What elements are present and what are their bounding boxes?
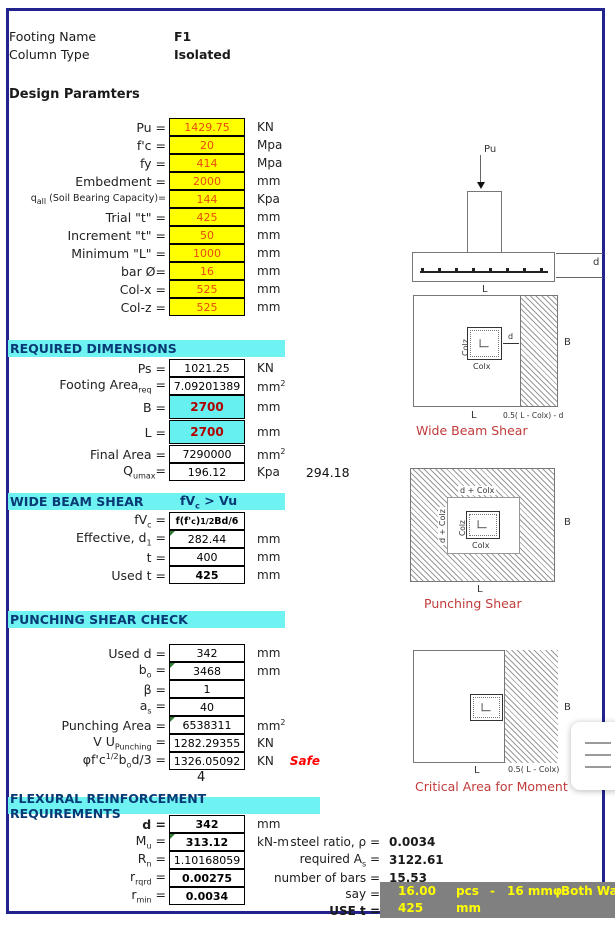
wide-beam-strip-label: 0.5( L - Colx) - d bbox=[503, 411, 563, 420]
col-z-unit: mm bbox=[257, 300, 280, 314]
say-pcs-label: pcs bbox=[456, 884, 479, 898]
phi-capacity-cell[interactable]: 1326.05092 bbox=[169, 752, 245, 770]
qall-unit: Kpa bbox=[257, 192, 280, 206]
footing-area-cell[interactable]: 7.09201389 bbox=[169, 377, 245, 395]
wide-beam-colz-label: Colz bbox=[461, 339, 470, 356]
embedment-row: Embedment = 2000 mm bbox=[8, 172, 280, 190]
col-z-label: Col-z = bbox=[8, 300, 169, 315]
moment-column-square bbox=[470, 694, 503, 721]
mu-cell[interactable]: 313.12 bbox=[169, 833, 245, 851]
r-min-label: rmin = bbox=[8, 887, 169, 905]
say-both-way-label: Both Way bbox=[561, 884, 615, 898]
t-row: t = 400 mm bbox=[8, 548, 280, 566]
footing-name-row: Footing Name F1 bbox=[9, 28, 191, 44]
vu-punching-unit: KN bbox=[257, 736, 274, 750]
column-mark-icon bbox=[478, 520, 487, 528]
wide-beam-shear-strip bbox=[520, 295, 558, 407]
wide-beam-shear-header: WIDE BEAM SHEAR fVc > Vu bbox=[8, 493, 285, 510]
qumax-cell[interactable]: 196.12 bbox=[169, 463, 245, 481]
qall-input-cell[interactable]: 144 bbox=[169, 190, 245, 208]
column-type-row: Column Type Isolated bbox=[9, 46, 231, 62]
used-d-label: Used d = bbox=[8, 646, 169, 661]
elevation-length-label: L bbox=[482, 284, 488, 295]
wide-beam-caption: Wide Beam Shear bbox=[416, 423, 528, 438]
bo-cell[interactable]: 3468 bbox=[169, 662, 245, 680]
fy-row: fy = 414 Mpa bbox=[8, 154, 282, 172]
l-label: L = bbox=[8, 425, 169, 440]
use-t-label: USE t = bbox=[240, 904, 380, 918]
trial-t-label: Trial "t" = bbox=[8, 210, 169, 225]
fy-label: fy = bbox=[8, 156, 169, 171]
wide-beam-d-arrow bbox=[503, 343, 519, 344]
pu-load-label: Pu bbox=[484, 144, 496, 155]
vu-punching-row: V UPunching = 1282.29355 KN bbox=[8, 734, 274, 752]
minimum-l-row: Minimum "L" = 1000 mm bbox=[8, 244, 280, 262]
wide-beam-l-label: L bbox=[471, 410, 477, 421]
fc-row: f'c = 20 Mpa bbox=[8, 136, 282, 154]
wide-beam-column-square bbox=[467, 327, 502, 360]
b-unit: mm bbox=[257, 400, 280, 414]
hamburger-menu-button[interactable] bbox=[571, 722, 615, 790]
use-t-label-row: USE t = bbox=[240, 902, 380, 920]
col-x-input-cell[interactable]: 525 bbox=[169, 280, 245, 298]
column-elevation-rect bbox=[467, 191, 502, 253]
result-banner: 16.00 pcs - 16 mmφ Both Way 425 mm bbox=[380, 882, 615, 918]
moment-critical-area bbox=[504, 650, 558, 763]
required-dimensions-header: REQUIRED DIMENSIONS bbox=[8, 340, 285, 357]
use-t-value: 425 bbox=[398, 901, 423, 915]
bar-dia-row: bar Ø= 16 mm bbox=[8, 262, 280, 280]
final-area-row: Final Area = 7290000 mm2 bbox=[8, 445, 285, 463]
punching-shear-header: PUNCHING SHEAR CHECK bbox=[8, 611, 285, 628]
embedment-unit: mm bbox=[257, 174, 280, 188]
increment-t-label: Increment "t" = bbox=[8, 228, 169, 243]
punching-area-label: Punching Area = bbox=[8, 718, 169, 733]
punching-l-label: L bbox=[477, 584, 483, 595]
qumax-unit: Kpa bbox=[257, 465, 280, 479]
bo-row: bo = 3468 mm bbox=[8, 662, 280, 680]
punching-caption: Punching Shear bbox=[424, 596, 522, 611]
used-t-label: Used t = bbox=[8, 568, 169, 583]
flex-d-label: d = bbox=[8, 817, 169, 832]
increment-t-unit: mm bbox=[257, 228, 280, 242]
rn-row: Rn = 1.10168059 bbox=[8, 851, 245, 869]
say-label-row: say = bbox=[240, 885, 380, 903]
col-x-row: Col-x = 525 mm bbox=[8, 280, 280, 298]
required-as-value: 3122.61 bbox=[389, 853, 444, 867]
moment-caption: Critical Area for Moment bbox=[415, 779, 568, 794]
beta-cell[interactable]: 1 bbox=[169, 680, 245, 698]
beta-row: β = 1 bbox=[8, 680, 257, 698]
flexural-header: FLEXURAL REINFORCEMENT REQUIREMENTS bbox=[8, 797, 320, 814]
vu-punching-cell[interactable]: 1282.29355 bbox=[169, 734, 245, 752]
wide-beam-d-label: d bbox=[508, 332, 513, 341]
t-cell[interactable]: 400 bbox=[169, 548, 245, 566]
column-type-value: Isolated bbox=[174, 47, 231, 62]
steel-ratio-value: 0.0034 bbox=[389, 835, 435, 849]
embedment-input-cell[interactable]: 2000 bbox=[169, 172, 245, 190]
used-d-row: Used d = 342 mm bbox=[8, 644, 280, 662]
say-dash: - bbox=[490, 884, 495, 898]
as-cell[interactable]: 40 bbox=[169, 698, 245, 716]
l-unit: mm bbox=[257, 425, 280, 439]
used-d-cell[interactable]: 342 bbox=[169, 644, 245, 662]
col-z-row: Col-z = 525 mm bbox=[8, 298, 280, 316]
vu-punching-label: V UPunching = bbox=[8, 734, 169, 752]
pu-unit: KN bbox=[257, 120, 274, 134]
bo-unit: mm bbox=[257, 664, 280, 678]
used-t-cell[interactable]: 425 bbox=[169, 566, 245, 584]
minimum-l-input-cell[interactable]: 1000 bbox=[169, 244, 245, 262]
minimum-l-unit: mm bbox=[257, 246, 280, 260]
col-x-unit: mm bbox=[257, 282, 280, 296]
say-count-value: 16.00 bbox=[398, 884, 436, 898]
increment-t-input-cell[interactable]: 50 bbox=[169, 226, 245, 244]
punching-colx-label: Colx bbox=[472, 541, 489, 550]
elevation-depth-label: d bbox=[593, 257, 599, 268]
design-parameters-title: Design Paramters bbox=[9, 86, 140, 102]
bar-dia-input-cell[interactable]: 16 bbox=[169, 262, 245, 280]
required-as-row: required As = 3122.61 bbox=[240, 851, 444, 869]
qall-row: qall (Soil Bearing Capacity)= 144 Kpa bbox=[8, 190, 280, 208]
trial-t-row: Trial "t" = 425 mm bbox=[8, 208, 280, 226]
stray-value: 4 bbox=[197, 770, 205, 785]
beta-label: β = bbox=[8, 682, 169, 697]
footing-name-value: F1 bbox=[174, 29, 191, 44]
d-dim-bottom-line bbox=[556, 277, 603, 278]
final-area-cell[interactable]: 7290000 bbox=[169, 445, 245, 463]
phi-capacity-label: φf'c1/2bod/3 = bbox=[8, 752, 169, 770]
b-cell[interactable]: 2700 bbox=[169, 395, 245, 419]
fy-unit: Mpa bbox=[257, 156, 282, 170]
trial-t-input-cell[interactable]: 425 bbox=[169, 208, 245, 226]
minimum-l-label: Minimum "L" = bbox=[8, 246, 169, 261]
as-row: as = 40 bbox=[8, 698, 257, 716]
number-of-bars-label: number of bars = bbox=[240, 871, 380, 885]
required-as-label: required As = bbox=[240, 852, 380, 868]
pu-label: Pu = bbox=[8, 120, 169, 135]
t-unit: mm bbox=[257, 550, 280, 564]
wide-beam-colx-label: Colx bbox=[473, 362, 490, 371]
effective-d1-cell[interactable]: 282.44 bbox=[169, 530, 245, 548]
fc-label: f'c = bbox=[8, 138, 169, 153]
punching-area-cell[interactable]: 6538311 bbox=[169, 716, 245, 734]
say-bar-size: 16 mmφ bbox=[507, 884, 562, 898]
fvc-label: fVc = bbox=[8, 512, 169, 530]
rn-label: Rn = bbox=[8, 851, 169, 869]
effective-d1-row: Effective, d1 = 282.44 mm bbox=[8, 530, 280, 548]
punching-top-dim-label: d + Colx bbox=[458, 486, 496, 495]
trial-t-unit: mm bbox=[257, 210, 280, 224]
pu-arrow-head-icon bbox=[477, 182, 485, 189]
punching-left-dim-label: d + Colz bbox=[438, 507, 447, 545]
use-t-unit: mm bbox=[456, 901, 481, 915]
r-rqrd-label: rrqrd = bbox=[8, 869, 169, 887]
r-rqrd-row: rrqrd = 0.00275 bbox=[8, 869, 245, 887]
fvc-formula-cell[interactable]: f(f'c)1/2Bd/6 bbox=[169, 512, 245, 530]
embedment-label: Embedment = bbox=[8, 174, 169, 189]
column-mark-icon bbox=[479, 339, 488, 347]
fy-input-cell[interactable]: 414 bbox=[169, 154, 245, 172]
final-area-unit: mm2 bbox=[257, 447, 285, 462]
ps-cell[interactable]: 1021.25 bbox=[169, 359, 245, 377]
ps-label: Ps = bbox=[8, 361, 169, 376]
phi-capacity-row: φf'c1/2bod/3 = 1326.05092 KN Safe bbox=[8, 752, 320, 770]
t-label: t = bbox=[8, 550, 169, 565]
d-dim-top-line bbox=[556, 253, 603, 254]
fvc-formula-row: fVc = f(f'c)1/2Bd/6 bbox=[8, 512, 245, 530]
flex-d-row: d = 342 mm bbox=[8, 815, 280, 833]
wide-beam-condition: fVc > Vu bbox=[180, 493, 237, 511]
footing-area-row: Footing Areareq = 7.09201389 mm2 bbox=[8, 377, 285, 395]
l-row: L = 2700 mm bbox=[8, 420, 280, 444]
r-min-row: rmin = 0.0034 bbox=[8, 887, 245, 905]
wide-beam-b-label: B bbox=[564, 337, 571, 348]
rn-cell[interactable]: 1.10168059 bbox=[169, 851, 245, 869]
effective-d1-label: Effective, d1 = bbox=[8, 530, 169, 548]
r-min-cell[interactable]: 0.0034 bbox=[169, 887, 245, 905]
qall-label: qall (Soil Bearing Capacity)= bbox=[8, 193, 169, 206]
punching-area-unit: mm2 bbox=[257, 718, 285, 733]
used-d-unit: mm bbox=[257, 646, 280, 660]
safe-status-badge: Safe bbox=[290, 754, 320, 768]
col-z-input-cell[interactable]: 525 bbox=[169, 298, 245, 316]
bar-dia-unit: mm bbox=[257, 264, 280, 278]
used-t-unit: mm bbox=[257, 568, 280, 582]
pu-input-cell[interactable]: 1429.75 bbox=[169, 118, 245, 136]
say-label: say = bbox=[240, 887, 380, 901]
effective-d1-unit: mm bbox=[257, 532, 280, 546]
moment-strip-label: 0.5( L - Colx) bbox=[508, 765, 559, 774]
qumax-row: Qumax= 196.12 Kpa 294.18 bbox=[8, 463, 350, 481]
increment-t-row: Increment "t" = 50 mm bbox=[8, 226, 280, 244]
steel-ratio-label: steel ratio, ρ = bbox=[240, 835, 380, 849]
bo-label: bo = bbox=[8, 662, 169, 680]
bar-dia-label: bar Ø= bbox=[8, 264, 169, 279]
ps-unit: KN bbox=[257, 361, 274, 375]
column-type-label: Column Type bbox=[9, 47, 174, 62]
qumax-label: Qumax= bbox=[8, 463, 169, 481]
ps-row: Ps = 1021.25 KN bbox=[8, 359, 274, 377]
moment-l-label: L bbox=[474, 765, 480, 776]
punching-area-row: Punching Area = 6538311 mm2 bbox=[8, 716, 285, 734]
moment-b-label: B bbox=[564, 702, 571, 713]
footing-design-worksheet: Footing Name F1 Column Type Isolated Des… bbox=[0, 0, 615, 938]
col-x-label: Col-x = bbox=[8, 282, 169, 297]
mu-label: Mu = bbox=[8, 833, 169, 851]
footing-area-label: Footing Areareq = bbox=[8, 377, 169, 395]
r-rqrd-cell[interactable]: 0.00275 bbox=[169, 869, 245, 887]
as-label: as = bbox=[8, 698, 169, 716]
fc-unit: Mpa bbox=[257, 138, 282, 152]
steel-ratio-row: steel ratio, ρ = 0.0034 bbox=[240, 833, 435, 851]
used-t-row: Used t = 425 mm bbox=[8, 566, 280, 584]
punching-b-label: B bbox=[564, 517, 571, 528]
column-mark-icon bbox=[481, 703, 490, 711]
flex-d-unit: mm bbox=[257, 817, 280, 831]
footing-area-unit: mm2 bbox=[257, 379, 285, 394]
flex-d-cell[interactable]: 342 bbox=[169, 815, 245, 833]
final-area-label: Final Area = bbox=[8, 447, 169, 462]
punching-column-square bbox=[466, 511, 500, 539]
footing-name-label: Footing Name bbox=[9, 29, 174, 44]
phi-capacity-unit: KN bbox=[257, 754, 274, 768]
rebar-dots bbox=[421, 268, 547, 272]
b-row: B = 2700 mm bbox=[8, 395, 280, 419]
punching-colz-label: Colz bbox=[458, 520, 467, 536]
b-label: B = bbox=[8, 400, 169, 415]
footing-elevation-rect bbox=[412, 252, 555, 282]
qumax-extra-value: 294.18 bbox=[306, 465, 350, 480]
l-cell[interactable]: 2700 bbox=[169, 420, 245, 444]
fc-input-cell[interactable]: 20 bbox=[169, 136, 245, 154]
pu-row: Pu = 1429.75 KN bbox=[8, 118, 274, 136]
